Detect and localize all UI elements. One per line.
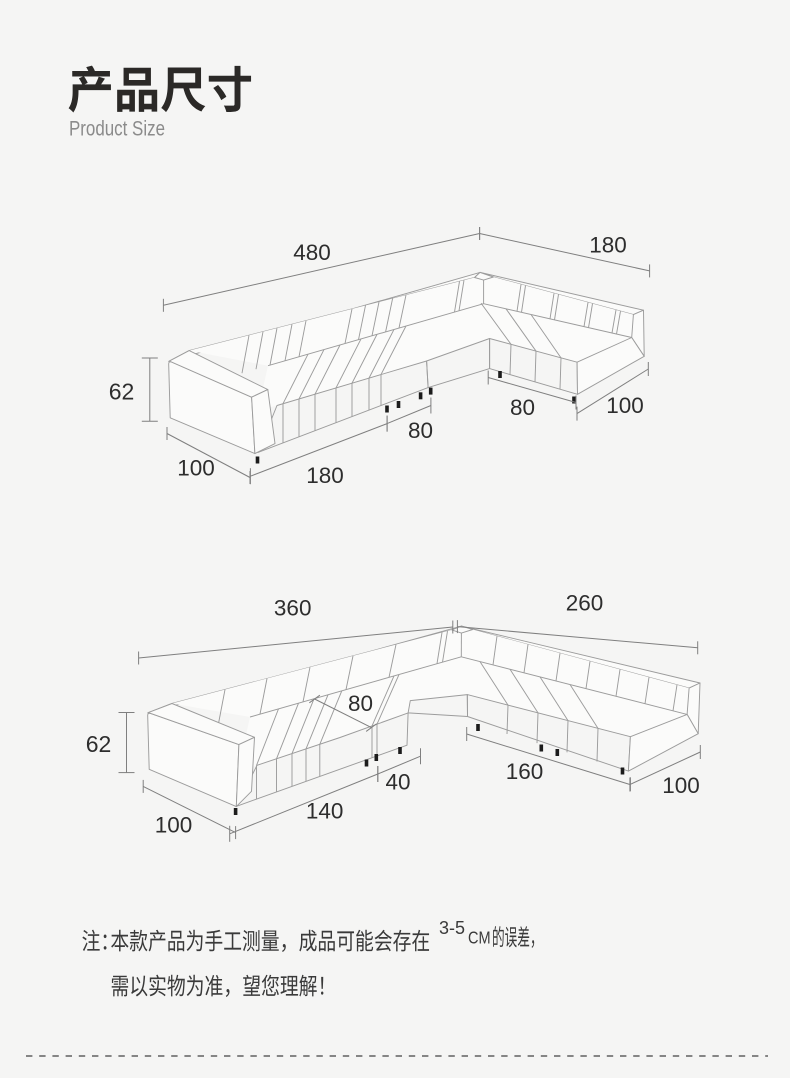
svg-text:62: 62	[109, 379, 135, 405]
svg-text:Product Size: Product Size	[69, 118, 165, 141]
svg-text:100: 100	[155, 813, 193, 838]
svg-text:62: 62	[86, 731, 112, 757]
svg-text:180: 180	[306, 463, 344, 488]
svg-text:480: 480	[293, 240, 331, 265]
svg-text:CM: CM	[468, 928, 491, 948]
svg-text:140: 140	[306, 799, 344, 824]
svg-text:100: 100	[662, 773, 700, 798]
svg-text:260: 260	[566, 591, 604, 616]
svg-text:180: 180	[589, 233, 627, 258]
svg-text:100: 100	[606, 393, 644, 418]
svg-text:360: 360	[274, 595, 312, 620]
svg-text:80: 80	[348, 691, 373, 716]
svg-text:160: 160	[506, 759, 544, 784]
svg-text:100: 100	[177, 456, 215, 481]
svg-text:80: 80	[510, 395, 535, 420]
svg-text:40: 40	[385, 770, 410, 795]
svg-text:80: 80	[408, 418, 433, 443]
svg-text:3-5: 3-5	[439, 918, 465, 938]
